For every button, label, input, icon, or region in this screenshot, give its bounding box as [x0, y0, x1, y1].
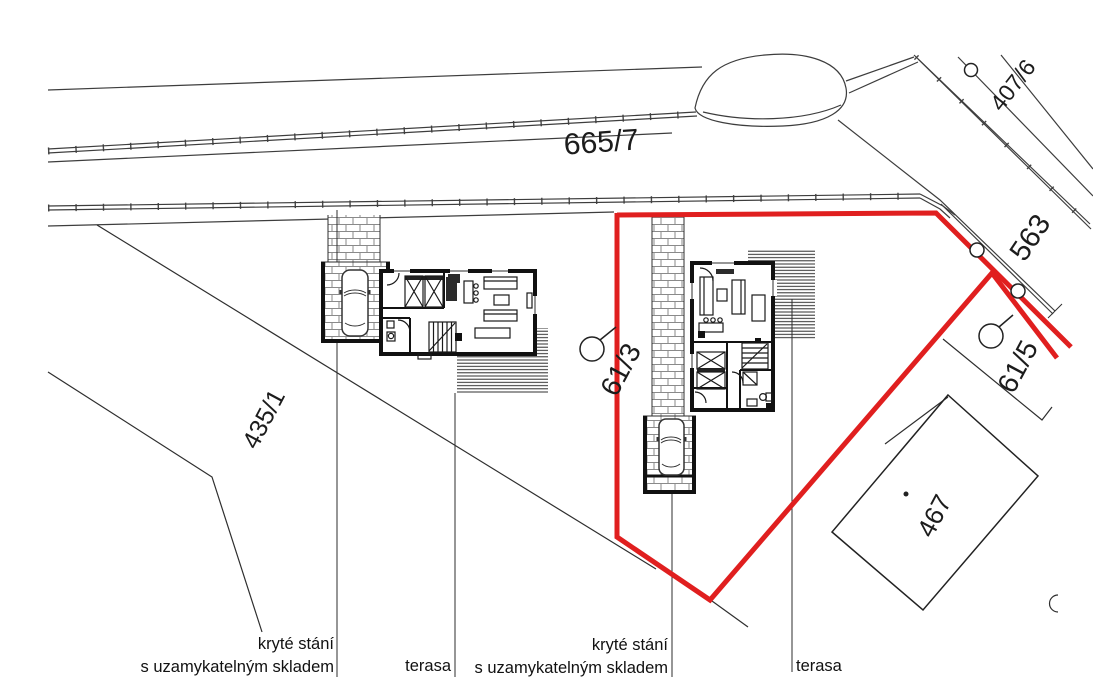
survey-marker-circle	[970, 243, 984, 257]
house-left	[381, 267, 539, 359]
paved-driveway-left	[328, 215, 380, 263]
parcel-boundary-lines	[48, 225, 1058, 632]
traffic-island	[695, 54, 846, 126]
fence-strip-upper	[48, 57, 918, 162]
paved-driveway-right	[652, 216, 684, 416]
house-right	[688, 259, 777, 410]
survey-marker-circle	[965, 64, 978, 77]
parcel-symbol-61-5	[979, 315, 1013, 348]
parcel-label-467: 467	[911, 490, 958, 542]
annotation-covered-parking-right-line1: kryté stání	[592, 636, 669, 654]
parcel-label-563: 563	[1004, 209, 1058, 267]
edge-symbol-partial	[1050, 595, 1059, 612]
street-563-edges	[838, 55, 1091, 318]
building-467-point	[904, 492, 909, 497]
annotation-terrace-right: terasa	[796, 657, 843, 675]
site-plan-drawing: 665/7 407/6 563 61/3 61/5 467 435/1 kryt…	[0, 0, 1093, 699]
car-icon	[340, 270, 371, 336]
boundary-61-3-street-side	[617, 213, 1071, 347]
annotation-covered-parking-right-line2: s uzamykatelným skladem	[475, 659, 668, 677]
annotation-covered-parking-left-line1: kryté stání	[258, 635, 335, 653]
annotation-terrace-left: terasa	[405, 657, 452, 675]
parcel-label-435-1: 435/1	[237, 385, 291, 453]
site-plan-canvas: 665/7 407/6 563 61/3 61/5 467 435/1 kryt…	[0, 0, 1093, 699]
annotation-covered-parking-left-line2: s uzamykatelným skladem	[141, 658, 334, 676]
chimney-icon	[455, 333, 462, 341]
carport-right	[643, 416, 696, 494]
parcel-label-665-7: 665/7	[563, 123, 640, 161]
car-icon	[657, 419, 687, 475]
parcel-label-61-3: 61/3	[594, 338, 647, 401]
fence-strip-lower	[48, 194, 955, 226]
survey-marker-circle	[1011, 284, 1025, 298]
stairs-left-house	[429, 322, 456, 352]
cabinet-icon	[716, 269, 734, 274]
parcel-label-407-6: 407/6	[985, 54, 1041, 115]
road-network	[48, 54, 1093, 318]
